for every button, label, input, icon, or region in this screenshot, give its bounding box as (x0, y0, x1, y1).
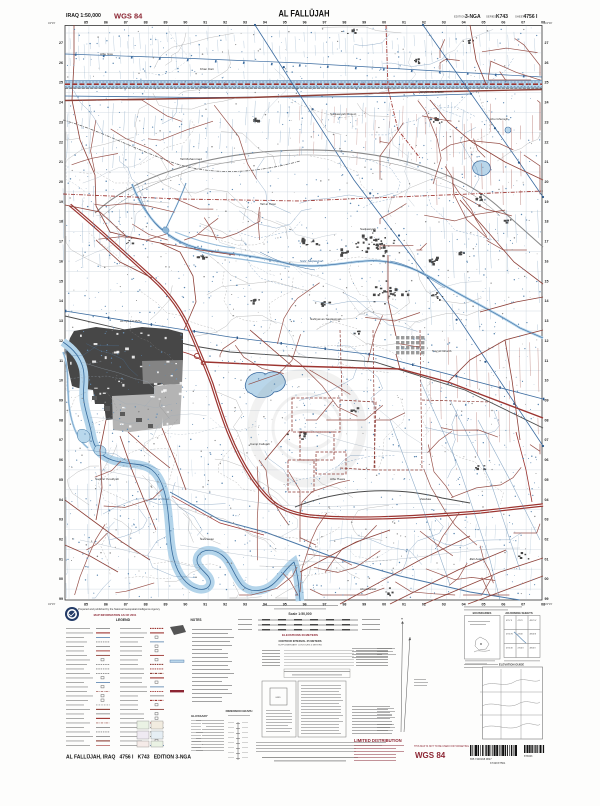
svg-text:Abu Munisir: Abu Munisir (360, 587, 376, 591)
svg-text:20: 20 (545, 180, 549, 184)
svg-text:25: 25 (545, 81, 549, 85)
svg-text:85: 85 (84, 21, 88, 25)
svg-text:24: 24 (59, 101, 63, 105)
svg-text:90: 90 (183, 603, 187, 607)
svg-text:SHARI AL JADID: SHARI AL JADID (420, 90, 444, 94)
svg-text:15: 15 (545, 279, 549, 283)
svg-text:LEGEND: LEGEND (116, 618, 131, 622)
svg-text:THIS MAP IS NOT TO BE USED FOR: THIS MAP IS NOT TO BE USED FOR TARGETING (414, 745, 469, 748)
svg-text:27: 27 (545, 41, 549, 45)
svg-text:CONTOUR INTERVAL 25 METERS: CONTOUR INTERVAL 25 METERS (278, 639, 321, 643)
svg-text:ELEVATION GUIDE: ELEVATION GUIDE (499, 662, 524, 666)
svg-text:12: 12 (545, 339, 549, 343)
svg-text:91: 91 (203, 603, 207, 607)
svg-text:95: 95 (283, 21, 287, 25)
svg-text:07: 07 (545, 438, 549, 442)
svg-text:43°15': 43°15' (48, 21, 56, 25)
svg-text:SUPPLEMENTARY CONTOURS 5 METER: SUPPLEMENTARY CONTOURS 5 METERS (278, 644, 322, 647)
svg-text:GRID: GRID (275, 697, 281, 699)
svg-text:96: 96 (303, 21, 307, 25)
svg-text:89: 89 (164, 21, 168, 25)
svg-text:Saqlawiyah: Saqlawiyah (360, 227, 376, 231)
svg-text:22: 22 (545, 140, 549, 144)
svg-text:01: 01 (402, 21, 406, 25)
svg-text:03: 03 (442, 603, 446, 607)
svg-text:05: 05 (482, 603, 486, 607)
svg-text:86: 86 (104, 603, 108, 607)
svg-text:LIMITED DISTRIBUTION: LIMITED DISTRIBUTION (354, 738, 402, 743)
svg-text:07: 07 (59, 438, 63, 442)
svg-text:26: 26 (545, 61, 549, 65)
svg-text:43°30': 43°30' (545, 21, 553, 25)
svg-text:11: 11 (545, 359, 549, 363)
svg-text:04: 04 (462, 21, 466, 25)
svg-text:Khan Dari: Khan Dari (200, 67, 214, 71)
svg-text:06: 06 (59, 458, 63, 462)
svg-text:06: 06 (501, 603, 505, 607)
svg-text:Zawbaa: Zawbaa (420, 497, 431, 501)
svg-text:Sadr al Yusufiyah: Sadr al Yusufiyah (95, 477, 119, 481)
svg-text:98: 98 (342, 603, 346, 607)
svg-text:87: 87 (124, 603, 128, 607)
svg-text:22: 22 (59, 140, 63, 144)
svg-text:13: 13 (545, 319, 549, 323)
svg-text:08: 08 (541, 603, 545, 607)
svg-text:10: 10 (59, 379, 63, 383)
svg-text:16: 16 (59, 260, 63, 264)
svg-text:85: 85 (84, 603, 88, 607)
svg-text:19: 19 (59, 200, 63, 204)
svg-text:11: 11 (59, 359, 63, 363)
svg-text:8TX003: 8TX003 (524, 755, 533, 758)
svg-text:20: 20 (59, 180, 63, 184)
svg-text:18: 18 (59, 220, 63, 224)
svg-text:AL FALLŪJAH, IRAQ 4756 I K: AL FALLŪJAH, IRAQ 4756 I K743 EDITION 3-… (66, 754, 191, 761)
svg-text:4756 III: 4756 III (506, 648, 513, 650)
svg-text:05: 05 (545, 478, 549, 482)
svg-text:IRAQ 1:50,000: IRAQ 1:50,000 (66, 13, 101, 19)
svg-text:4857 IV: 4857 IV (530, 620, 538, 622)
svg-text:09: 09 (545, 399, 549, 403)
svg-text:Sayyid Gharib: Sayyid Gharib (432, 349, 452, 353)
svg-text:89: 89 (164, 603, 168, 607)
svg-text:07: 07 (521, 21, 525, 25)
svg-text:97: 97 (323, 21, 327, 25)
svg-text:Camp Fallujah: Camp Fallujah (250, 442, 270, 446)
svg-text:18: 18 (545, 220, 549, 224)
svg-text:655 7430168 0827: 655 7430168 0827 (470, 757, 492, 761)
svg-text:NOTES: NOTES (191, 618, 202, 622)
svg-text:23: 23 (545, 120, 549, 124)
svg-text:GLOSSARY: GLOSSARY (191, 714, 208, 718)
svg-text:09: 09 (59, 399, 63, 403)
svg-text:97: 97 (323, 603, 327, 607)
svg-text:91: 91 (203, 21, 207, 25)
svg-text:03: 03 (442, 21, 446, 25)
svg-text:00: 00 (59, 577, 63, 581)
svg-text:02: 02 (422, 603, 426, 607)
svg-text:4756 I: 4756 I (518, 634, 524, 636)
svg-text:Albu Hawa: Albu Hawa (330, 477, 345, 481)
svg-text:21: 21 (545, 160, 549, 164)
svg-text:K743XX7561: K743XX7561 (490, 761, 506, 765)
svg-text:23: 23 (59, 120, 63, 124)
svg-text:03: 03 (59, 518, 63, 522)
svg-text:08: 08 (59, 418, 63, 422)
svg-text:AL FALLŪJAH: AL FALLŪJAH (279, 9, 330, 20)
svg-text:01: 01 (545, 557, 549, 561)
svg-text:06: 06 (501, 21, 505, 25)
svg-text:DIMENSION GRAPH: DIMENSION GRAPH (226, 709, 253, 713)
svg-text:4856 III: 4856 III (530, 634, 537, 636)
svg-text:Saqlawiyah Project: Saqlawiyah Project (330, 112, 356, 116)
svg-text:03: 03 (545, 518, 549, 522)
svg-text:EDITION: EDITION (454, 15, 465, 19)
svg-text:Scale 1:50,000: Scale 1:50,000 (288, 612, 311, 616)
svg-text:27: 27 (59, 41, 63, 45)
svg-text:07: 07 (521, 603, 525, 607)
svg-text:99: 99 (545, 597, 549, 601)
svg-text:21: 21 (59, 160, 63, 164)
svg-text:02: 02 (422, 21, 426, 25)
svg-text:BOUNDARIES: BOUNDARIES (473, 611, 492, 615)
svg-text:16: 16 (545, 260, 549, 264)
svg-text:94: 94 (263, 603, 267, 607)
svg-text:25: 25 (59, 81, 63, 85)
svg-text:K743: K743 (496, 14, 508, 20)
svg-text:4757 I: 4757 I (518, 620, 524, 622)
svg-text:04: 04 (462, 603, 466, 607)
svg-text:14: 14 (59, 299, 63, 303)
svg-text:Nahr Saqlawiyah: Nahr Saqlawiyah (300, 259, 324, 263)
svg-text:ELEVATIONS IN METERS: ELEVATIONS IN METERS (282, 633, 318, 637)
svg-text:87: 87 (124, 21, 128, 25)
svg-text:Prepared and published by the: Prepared and published by the National G… (78, 607, 161, 611)
svg-text:WGS 84: WGS 84 (415, 751, 446, 760)
svg-text:00: 00 (382, 21, 386, 25)
svg-text:92: 92 (223, 21, 227, 25)
svg-text:93: 93 (243, 603, 247, 607)
svg-text:94: 94 (263, 21, 267, 25)
svg-text:05: 05 (59, 478, 63, 482)
svg-text:88: 88 (144, 21, 148, 25)
svg-text:24: 24 (545, 101, 549, 105)
svg-text:15: 15 (59, 279, 63, 283)
svg-text:01: 01 (59, 557, 63, 561)
svg-text:19: 19 (545, 200, 549, 204)
svg-text:08: 08 (541, 21, 545, 25)
svg-text:04: 04 (545, 498, 549, 502)
svg-text:WGS 84: WGS 84 (114, 12, 143, 21)
svg-text:★: ★ (401, 618, 403, 621)
svg-text:3-NGA: 3-NGA (465, 14, 481, 20)
svg-text:4856 II: 4856 II (530, 648, 537, 650)
svg-text:33°15': 33°15' (545, 602, 553, 606)
svg-text:ADJOINING SHEETS: ADJOINING SHEETS (505, 611, 533, 615)
svg-text:99: 99 (362, 603, 366, 607)
svg-text:26: 26 (59, 61, 63, 65)
svg-text:92: 92 (223, 603, 227, 607)
svg-text:Abu Ghurayb: Abu Ghurayb (490, 117, 509, 121)
svg-text:Nahiyat as Saqlawiyah: Nahiyat as Saqlawiyah (310, 317, 342, 321)
svg-text:10: 10 (545, 379, 549, 383)
svg-text:88: 88 (144, 603, 148, 607)
svg-text:01: 01 (402, 603, 406, 607)
svg-text:Tall Aswad: Tall Aswad (470, 557, 485, 561)
svg-text:99: 99 (59, 597, 63, 601)
svg-text:02: 02 (545, 538, 549, 542)
svg-text:05: 05 (482, 21, 486, 25)
svg-text:98: 98 (342, 21, 346, 25)
svg-text:14: 14 (545, 299, 549, 303)
svg-text:95: 95 (283, 603, 287, 607)
svg-text:AL FALLUJAH: AL FALLUJAH (120, 319, 140, 323)
svg-text:MAP INFORMATION AS OF 2001: MAP INFORMATION AS OF 2001 (94, 613, 137, 617)
svg-text:17: 17 (59, 240, 63, 244)
svg-text:02: 02 (59, 538, 63, 542)
svg-text:04: 04 (59, 498, 63, 502)
svg-text:4756 I: 4756 I (524, 14, 539, 20)
svg-text:4756 II: 4756 II (518, 648, 525, 650)
svg-text:4756 IV: 4756 IV (506, 634, 514, 636)
svg-text:SERIES: SERIES (486, 15, 496, 19)
svg-text:Albu Issa: Albu Issa (100, 52, 113, 56)
svg-text:Nahrawan: Nahrawan (200, 537, 214, 541)
svg-text:90: 90 (183, 21, 187, 25)
svg-text:43°15': 43°15' (48, 602, 56, 606)
svg-text:06: 06 (545, 458, 549, 462)
svg-text:17: 17 (545, 240, 549, 244)
svg-text:93: 93 (243, 21, 247, 25)
svg-text:08: 08 (545, 418, 549, 422)
svg-text:00: 00 (382, 603, 386, 607)
svg-text:96: 96 (303, 603, 307, 607)
svg-text:99: 99 (362, 21, 366, 25)
svg-text:86: 86 (104, 21, 108, 25)
svg-text:13: 13 (59, 319, 63, 323)
svg-text:00: 00 (545, 577, 549, 581)
svg-text:Tall Muhammad: Tall Muhammad (180, 157, 202, 161)
svg-text:4757 II: 4757 II (506, 620, 513, 622)
svg-text:12: 12 (59, 339, 63, 343)
